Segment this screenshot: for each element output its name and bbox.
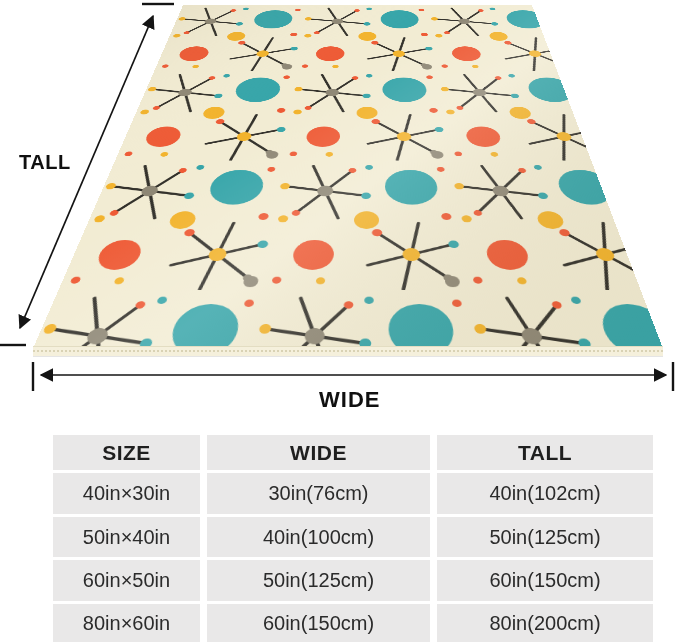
table-cell: 50in×40in	[53, 517, 200, 557]
blanket-bottom-edge	[33, 346, 663, 356]
table-cell: 40in×30in	[53, 473, 200, 514]
stitch-line	[33, 350, 663, 352]
table-cell: 40in(102cm)	[437, 473, 653, 514]
table-cell: 60in×50in	[53, 560, 200, 601]
table-cell: 50in(125cm)	[207, 560, 430, 601]
table-cell: 80in×60in	[53, 604, 200, 642]
table-header-size: SIZE	[53, 435, 200, 470]
blanket-pattern-svg	[34, 5, 662, 346]
table-cell: 80in(200cm)	[437, 604, 653, 642]
size-table: SIZE WIDE TALL 40in×30in 30in(76cm) 40in…	[53, 435, 653, 642]
blanket-image	[34, 5, 672, 346]
table-cell: 60in(150cm)	[437, 560, 653, 601]
table-cell: 60in(150cm)	[207, 604, 430, 642]
product-size-figure: TALL WIDE SIZE WIDE TALL 40in×30in 30in(…	[0, 0, 679, 644]
tall-label: TALL	[19, 151, 71, 174]
table-header-tall: TALL	[437, 435, 653, 470]
table-cell: 30in(76cm)	[207, 473, 430, 514]
fabric-sheen	[34, 5, 662, 346]
table-cell: 40in(100cm)	[207, 517, 430, 557]
blanket-surface	[34, 5, 662, 346]
table-header-wide: WIDE	[207, 435, 430, 470]
wide-label: WIDE	[319, 387, 380, 413]
table-cell: 50in(125cm)	[437, 517, 653, 557]
